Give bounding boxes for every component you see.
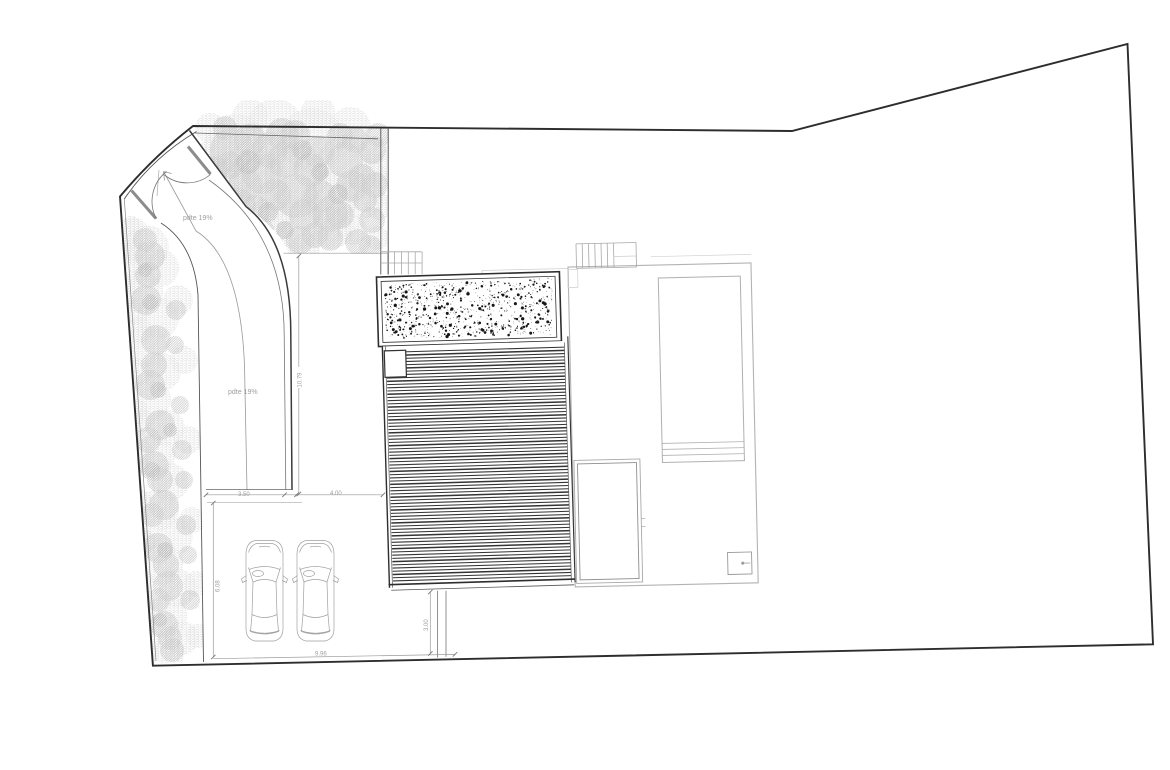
svg-text:4.00: 4.00 [330, 491, 342, 497]
svg-text:pdte 19%: pdte 19% [228, 389, 258, 396]
svg-text:3.00: 3.00 [424, 619, 430, 631]
svg-text:9.96: 9.96 [315, 652, 327, 658]
svg-text:10.79: 10.79 [297, 372, 303, 388]
svg-text:pdte 19%: pdte 19% [183, 215, 213, 222]
svg-text:6.08: 6.08 [216, 580, 222, 592]
svg-text:3.50: 3.50 [238, 492, 250, 498]
